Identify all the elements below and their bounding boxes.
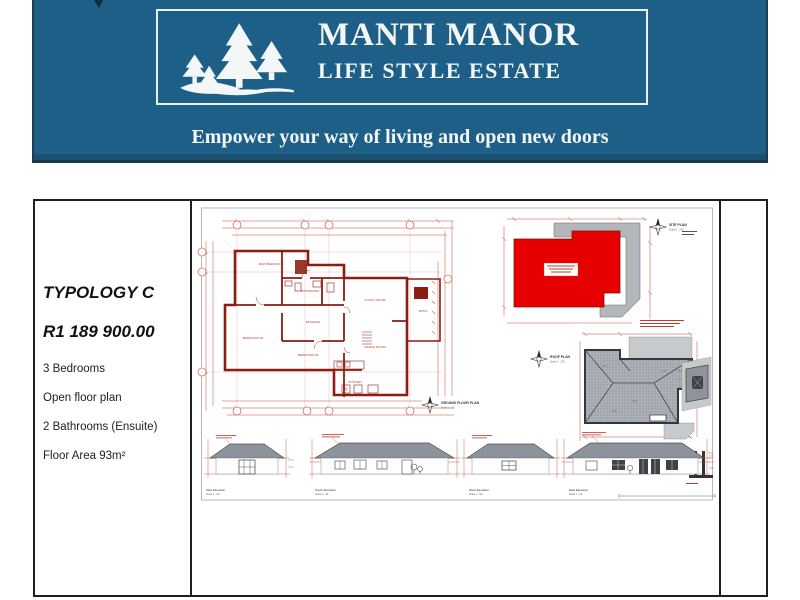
elevation-label: South Elevation [315,488,336,492]
room-label: LIVING ROOM [365,298,386,302]
elevation-scale: Scale 1 : 50 [569,493,583,496]
drawing-sheet-svg: MAIN BEDROOM BEDROOM 02 BEDROOM 03 BATHR… [192,201,719,595]
roof-plan-label: ROOF PLAN [550,355,571,359]
roof-plan-scale: Scale 1 : 100 [550,361,565,364]
ground-floor-plan-scale: Scale 1 : 50 [441,407,455,410]
feature-floorplan: Open floor plan [43,392,190,404]
banner-bottom-edge [34,154,766,160]
room-label: BATHROOM [301,289,319,293]
right-margin-strip [719,201,766,595]
ground-floor-plan-label: GROUND FLOOR PLAN [441,401,480,405]
room-label: MAIN BEDROOM [259,262,284,266]
room-label: DINING ROOM [364,345,386,349]
estate-subtitle: LIFE STYLE ESTATE [318,59,579,83]
tagline: Empower your way of living and open new … [34,126,766,149]
room-label: PASSAGE [306,320,321,324]
elevation-label: West Elevation [469,488,489,492]
architectural-drawings: MAIN BEDROOM BEDROOM 02 BEDROOM 03 BATHR… [192,201,719,595]
typology-title: TYPOLOGY C [43,283,190,303]
pine-trees-icon [174,21,300,99]
elevation-scale: Scale 1 : 50 [315,493,329,496]
room-label: PATIO [419,309,428,313]
listing-details-panel: TYPOLOGY C R1 189 900.00 3 Bedrooms Open… [35,201,192,595]
price-label: R1 189 900.00 [43,322,190,342]
feature-bedrooms: 3 Bedrooms [43,363,190,375]
room-label: KITCHEN [348,380,362,384]
feature-bathrooms: 2 Bathrooms (Ensuite) [43,421,190,433]
feature-floor-area: Floor Area 93m² [43,450,190,462]
listing-sheet: TYPOLOGY C R1 189 900.00 3 Bedrooms Open… [33,199,768,597]
site-label-block [544,263,578,276]
room-label: BEDROOM 03 [298,353,319,357]
logo-text: MANTI MANOR LIFE STYLE ESTATE [318,17,579,83]
logo-box: MANTI MANOR LIFE STYLE ESTATE [156,9,648,105]
print-artifact-mark [94,0,103,8]
header-banner: MANTI MANOR LIFE STYLE ESTATE Empower yo… [32,0,768,163]
site-plan-label: SITE PLAN [669,223,687,227]
estate-title: MANTI MANOR [318,17,579,53]
elevation-label: East Elevation [569,488,589,492]
flyer-page: MANTI MANOR LIFE STYLE ESTATE Empower yo… [0,0,800,600]
elevation-scale: Scale 1 : 50 [206,493,220,496]
elevation-label: Side Elevation [206,488,226,492]
site-plan-scale: Scale 1 : 200 [669,229,684,232]
elevation-scale: Scale 1 : 50 [469,493,483,496]
room-label: BEDROOM 02 [243,336,264,340]
